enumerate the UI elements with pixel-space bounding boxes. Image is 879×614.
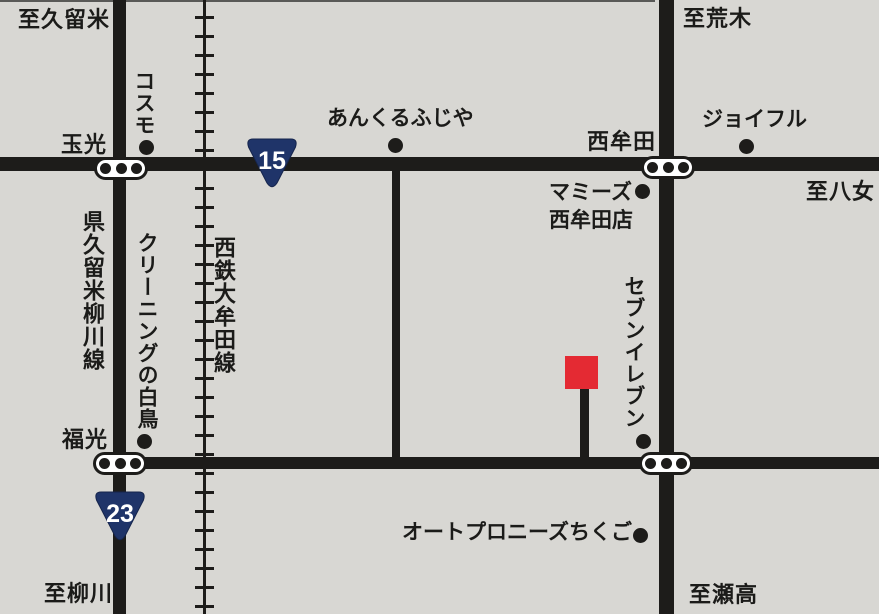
dest-yame-label: 至八女 bbox=[806, 180, 875, 204]
road-vertical-east bbox=[659, 0, 674, 614]
road-horizontal-bottom bbox=[113, 457, 879, 469]
landmark-mamys-label-line2: 西牟田店 bbox=[549, 209, 633, 232]
landmark-cleaning-hakucho-label: クリーニングの白鳥 bbox=[136, 232, 157, 430]
auto-pronies-dot bbox=[633, 528, 648, 543]
road-vertical-middle bbox=[392, 157, 400, 467]
seven-eleven-dot bbox=[636, 434, 651, 449]
landmark-cosmo-label: コスモ bbox=[133, 70, 154, 136]
cosmo-dot bbox=[139, 140, 154, 155]
cleaning-hakucho-dot bbox=[137, 434, 152, 449]
joyful-dot bbox=[739, 139, 754, 154]
mamys-dot bbox=[635, 184, 650, 199]
destination-marker bbox=[565, 356, 598, 389]
traffic-light-nishimuta bbox=[641, 156, 695, 179]
intersection-tamamitsu-label: 玉光 bbox=[61, 133, 107, 157]
landmark-mamys-label-line1: マミーズ bbox=[549, 181, 632, 204]
route-shield-23: 23 bbox=[94, 490, 146, 544]
route-shield-15: 15 bbox=[246, 137, 298, 191]
destination-access-road bbox=[580, 385, 589, 463]
dest-kurume-label: 至久留米 bbox=[18, 8, 110, 32]
traffic-light-southeast bbox=[639, 452, 693, 475]
road-pref-kurume-yanagawa-label: 県久留米柳川線 bbox=[81, 210, 103, 371]
landmark-auto-pronies-label: オートプロニーズちくご bbox=[402, 521, 632, 544]
intersection-nishimuta-label: 西牟田 bbox=[587, 130, 656, 154]
map-canvas: 15 23 至久留米 至荒木 至八女 至柳川 至瀬高 玉光 西牟田 福光 コスモ… bbox=[0, 0, 879, 614]
route-shield-15-number: 15 bbox=[258, 147, 286, 175]
landmark-seven-eleven-label: セブンイレブン bbox=[623, 275, 644, 429]
landmark-joyful-label: ジョイフル bbox=[702, 108, 807, 131]
intersection-fukumitsu-label: 福光 bbox=[62, 428, 108, 452]
traffic-light-tamamitsu bbox=[94, 157, 148, 180]
railway-nishitetsu-omuta-label: 西鉄大牟田線 bbox=[212, 236, 234, 374]
route-shield-23-number: 23 bbox=[106, 500, 134, 528]
dest-yanagawa-label: 至柳川 bbox=[44, 582, 113, 606]
ankuru-fujiya-dot bbox=[388, 138, 403, 153]
dest-setaka-label: 至瀬高 bbox=[689, 583, 758, 607]
scan-artifact-line bbox=[0, 0, 655, 2]
dest-araki-label: 至荒木 bbox=[683, 7, 752, 31]
landmark-ankuru-fujiya-label: あんくるふじや bbox=[327, 107, 474, 130]
traffic-light-fukumitsu bbox=[93, 452, 147, 475]
